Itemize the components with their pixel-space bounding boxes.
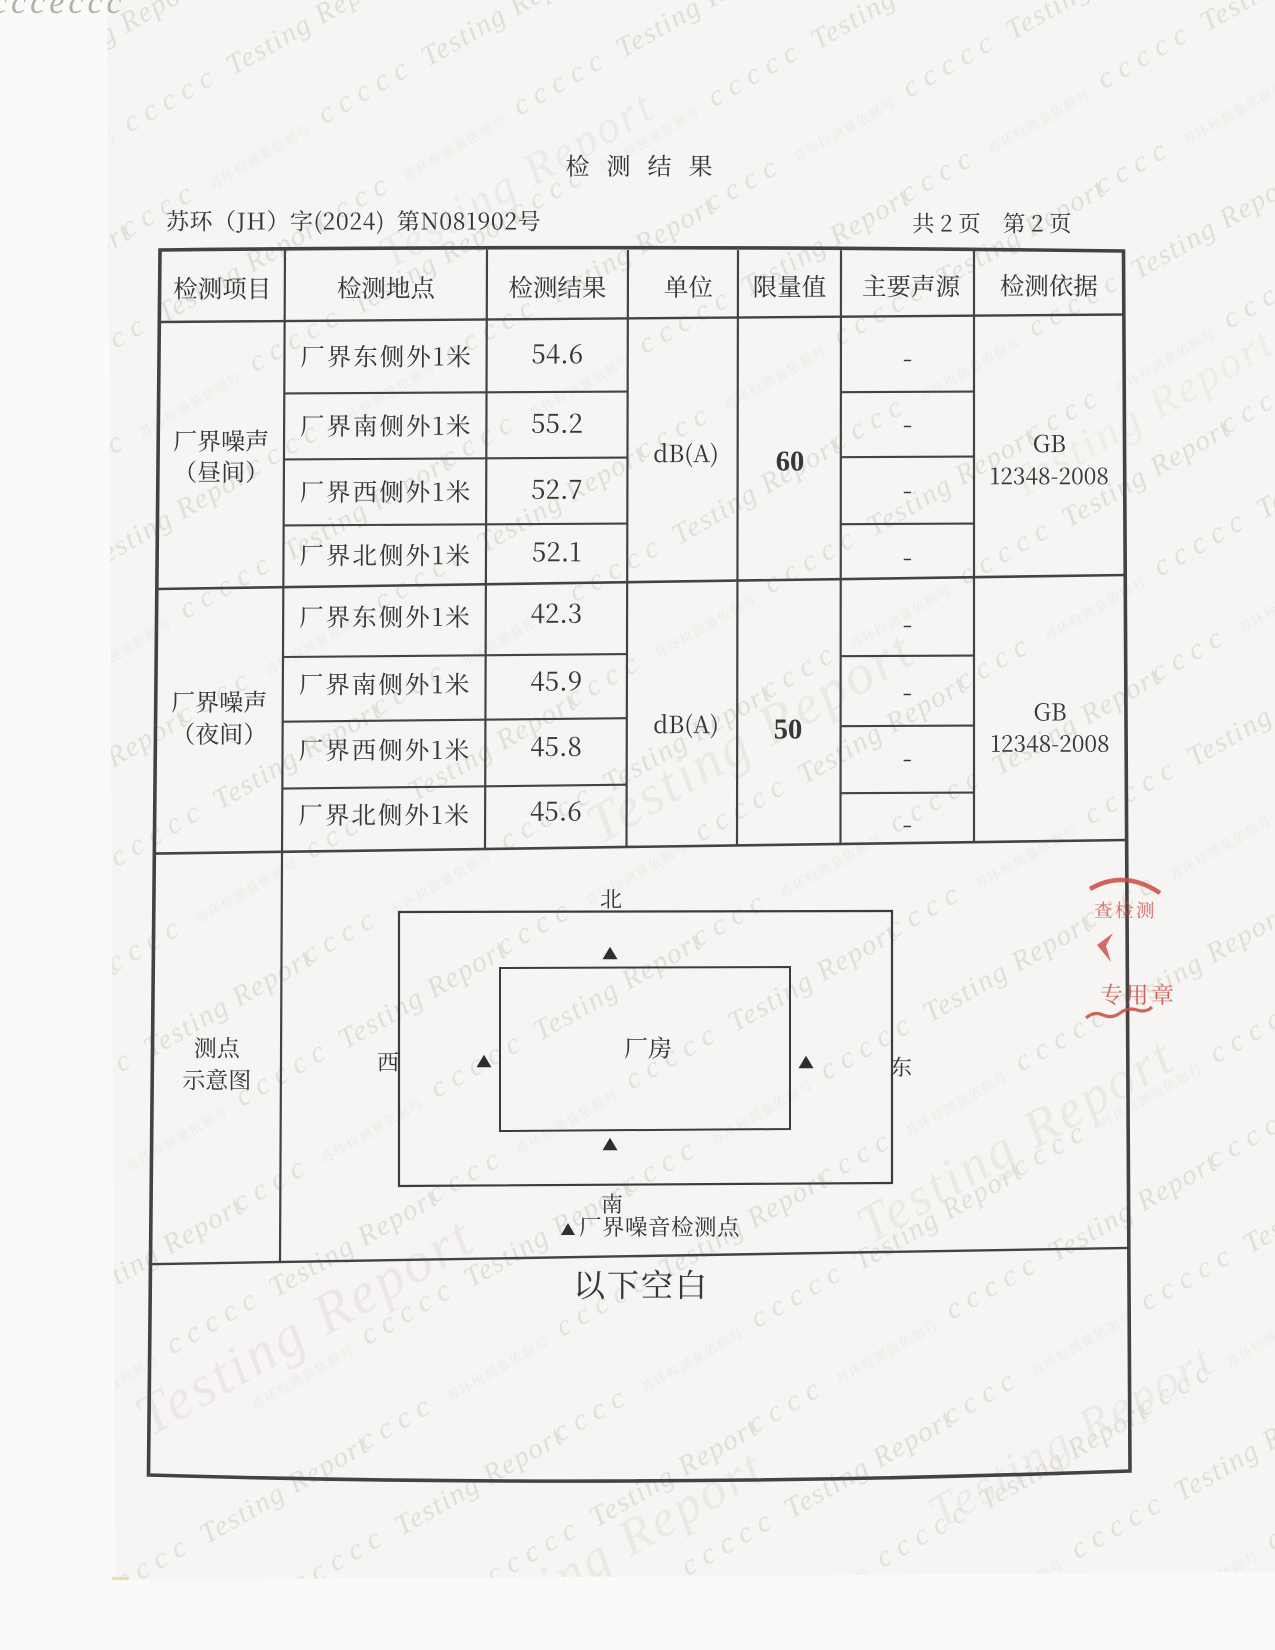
svg-text:50: 50 (774, 715, 803, 746)
svg-text:ccceccc: ccceccc (0, 0, 126, 21)
svg-text:60: 60 (776, 447, 805, 478)
